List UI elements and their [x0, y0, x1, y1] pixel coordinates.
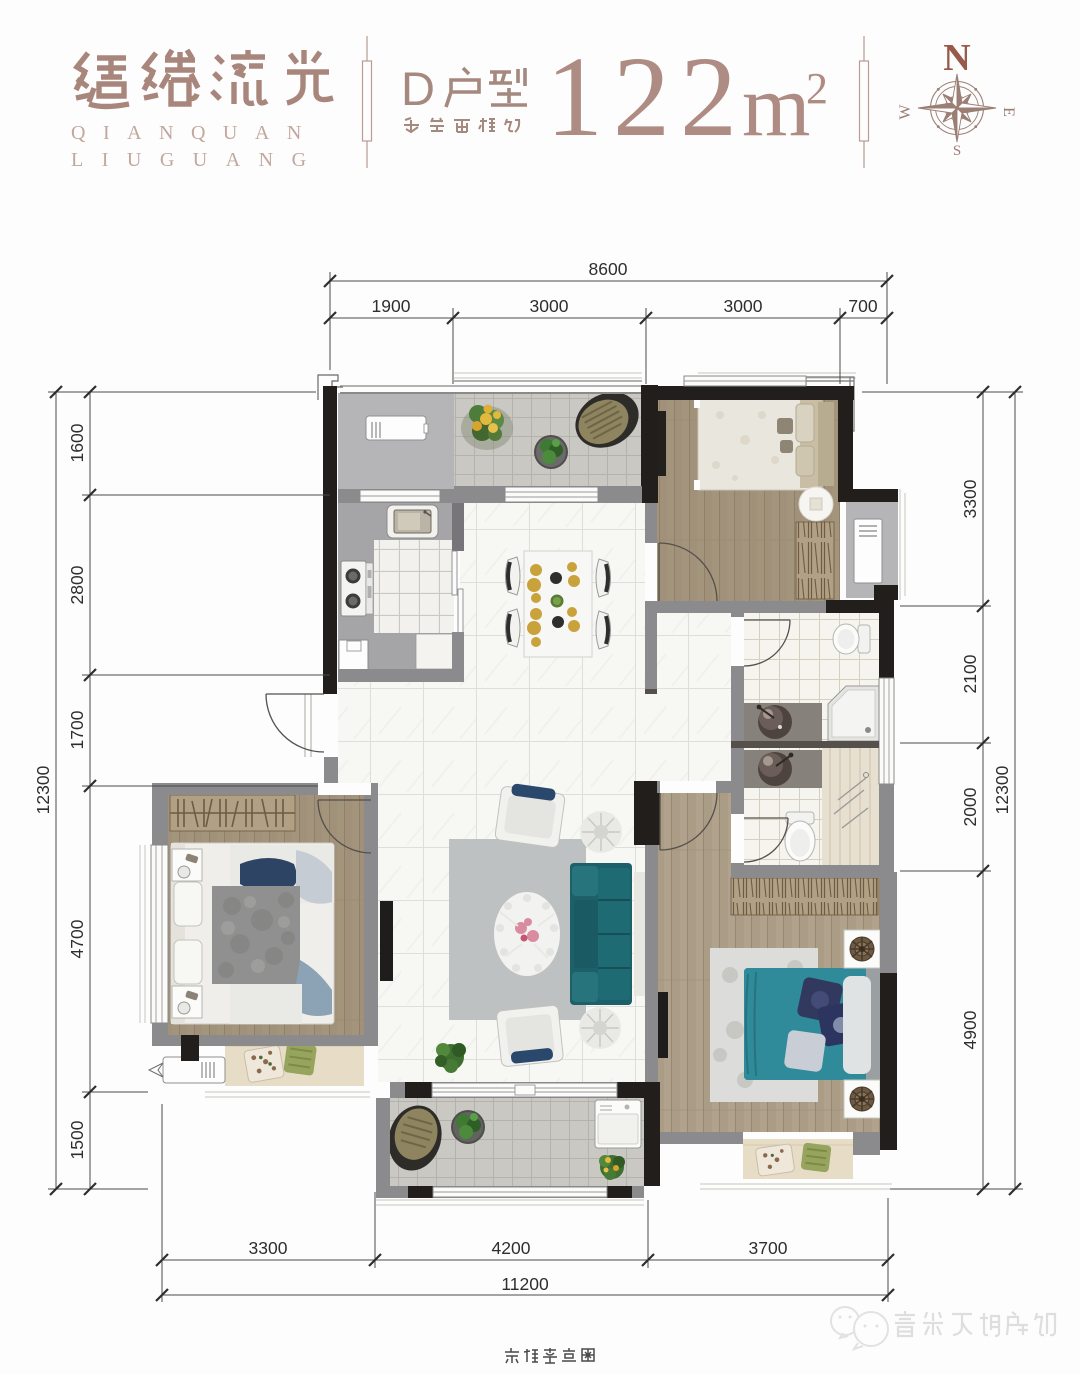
svg-text:S: S [953, 143, 961, 159]
svg-text:122: 122 [546, 33, 747, 160]
svg-text:1700: 1700 [67, 710, 87, 749]
svg-text:1500: 1500 [67, 1120, 87, 1159]
svg-text:12300: 12300 [33, 765, 53, 814]
svg-text:3300: 3300 [960, 479, 980, 518]
svg-text:E: E [1000, 107, 1017, 117]
svg-text:m: m [742, 58, 810, 155]
svg-text:3000: 3000 [530, 296, 569, 316]
svg-text:N: N [943, 37, 970, 79]
svg-text:700: 700 [848, 296, 877, 316]
svg-text:3000: 3000 [724, 296, 763, 316]
svg-text:2800: 2800 [67, 565, 87, 604]
svg-text:12300: 12300 [992, 765, 1012, 814]
svg-text:4700: 4700 [67, 919, 87, 958]
svg-text:3300: 3300 [249, 1238, 288, 1258]
svg-text:3700: 3700 [749, 1238, 788, 1258]
svg-text:4200: 4200 [492, 1238, 531, 1258]
svg-text:D: D [401, 62, 435, 115]
svg-text:1900: 1900 [372, 296, 411, 316]
svg-text:LIUGUANG: LIUGUANG [71, 149, 325, 171]
svg-text:2100: 2100 [960, 654, 980, 693]
svg-text:11200: 11200 [501, 1274, 549, 1294]
svg-text:4900: 4900 [960, 1010, 980, 1049]
svg-text:2: 2 [806, 64, 828, 113]
svg-text:QIANQUAN: QIANQUAN [71, 122, 319, 144]
svg-text:2000: 2000 [960, 787, 980, 826]
svg-text:W: W [897, 104, 914, 120]
svg-text:8600: 8600 [589, 259, 628, 279]
svg-text:1600: 1600 [67, 423, 87, 462]
